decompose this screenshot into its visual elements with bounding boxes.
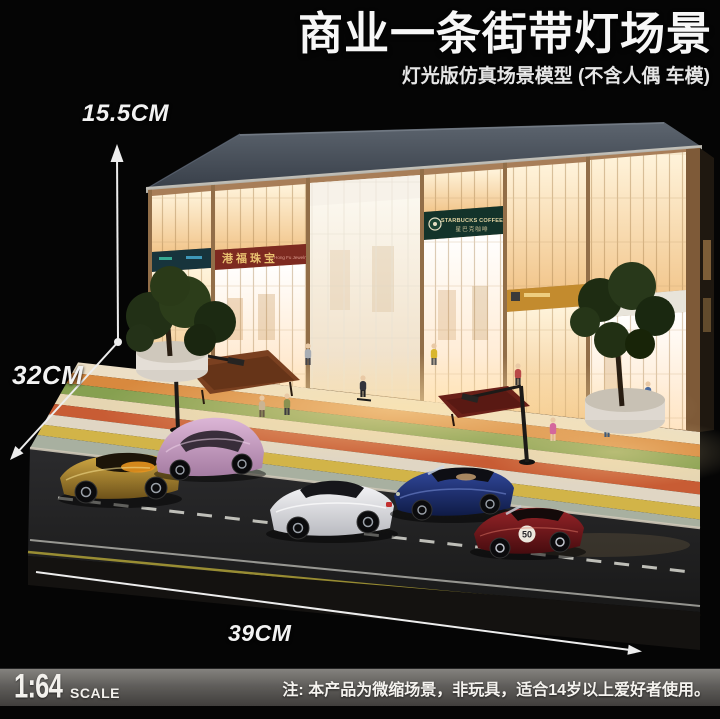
- starbucks-sign-en: STARBUCKS COFFEE: [441, 218, 503, 224]
- product-subtitle: 灯光版仿真场景模型 (不含人偶 车模): [240, 61, 710, 88]
- building-side-wall: [700, 148, 714, 432]
- scale-value: 1:64: [14, 666, 62, 706]
- jewelry-sign-cn: 港福珠宝: [222, 251, 278, 265]
- dimension-height-label: 15.5CM: [82, 100, 169, 128]
- disclaimer-note: 注: 本产品为微缩场景，非玩具，适合14岁以上爱好者使用。: [282, 676, 710, 700]
- jewelry-sign-en: Hong Fu Jewelry: [274, 255, 309, 260]
- race-number: 50: [522, 530, 532, 540]
- scale-badge: 1:64 SCALE: [14, 669, 120, 706]
- dimension-depth-label: 32CM: [12, 360, 83, 391]
- product-title: 商业一条街带灯场景: [242, 10, 712, 57]
- scale-unit: SCALE: [70, 685, 120, 701]
- footer-bar: 1:64 SCALE 注: 本产品为微缩场景，非玩具，适合14岁以上爱好者使用。: [0, 668, 720, 706]
- dimension-width-label: 39CM: [228, 620, 291, 647]
- product-poster: 港福珠宝 Hong Fu Jewelry: [0, 0, 720, 719]
- starbucks-sign-cn: 星巴克咖啡: [456, 225, 489, 233]
